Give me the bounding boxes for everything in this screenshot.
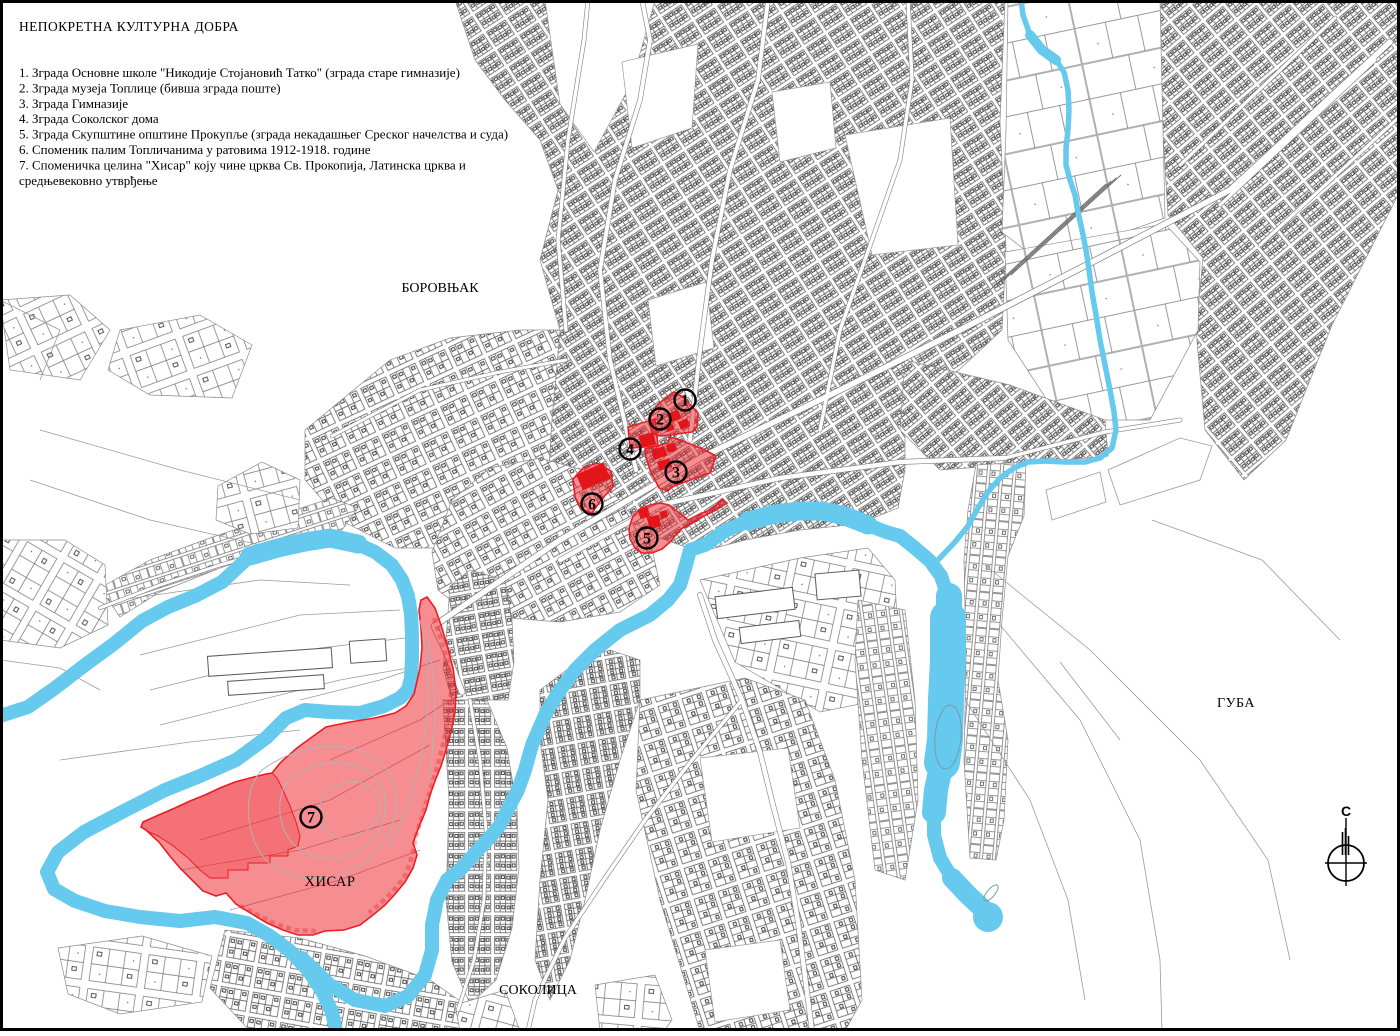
svg-text:4. Зграда Соколског дома: 4. Зграда Соколског дома	[19, 111, 159, 126]
svg-text:ХИСАР: ХИСАР	[305, 874, 356, 890]
svg-text:7. Споменичка целина "Хисар" к: 7. Споменичка целина "Хисар" коју чине ц…	[19, 157, 466, 172]
svg-text:6. Споменик палим Топличанима: 6. Споменик палим Топличанима у ратовима…	[19, 142, 371, 157]
svg-text:НЕПОКРЕТНА КУЛТУРНА ДОБРА: НЕПОКРЕТНА КУЛТУРНА ДОБРА	[19, 19, 239, 34]
svg-text:5: 5	[643, 531, 651, 548]
svg-text:средњевековно утврђење: средњевековно утврђење	[19, 173, 158, 188]
svg-text:5. Зграда Скупштине општине Пр: 5. Зграда Скупштине општине Прокупље (зг…	[19, 127, 508, 142]
svg-text:ГУБА: ГУБА	[1217, 696, 1255, 711]
svg-text:2: 2	[656, 412, 664, 429]
svg-text:7: 7	[307, 810, 315, 827]
svg-text:3. Зграда Гимназије: 3. Зграда Гимназије	[19, 96, 128, 111]
svg-text:1. Зграда Основне школе "Никод: 1. Зграда Основне школе "Никодије Стојан…	[19, 65, 460, 80]
svg-text:4: 4	[626, 442, 634, 459]
svg-text:СОКОЛИЦА: СОКОЛИЦА	[499, 983, 578, 998]
svg-text:2. Зграда музеја Топлице (бивш: 2. Зграда музеја Топлице (бивша зграда п…	[19, 80, 281, 95]
svg-text:БОРОВЊАК: БОРОВЊАК	[401, 281, 479, 296]
svg-text:1: 1	[681, 393, 689, 410]
svg-text:С: С	[1341, 803, 1351, 819]
svg-text:3: 3	[672, 465, 680, 482]
svg-text:6: 6	[588, 497, 596, 514]
